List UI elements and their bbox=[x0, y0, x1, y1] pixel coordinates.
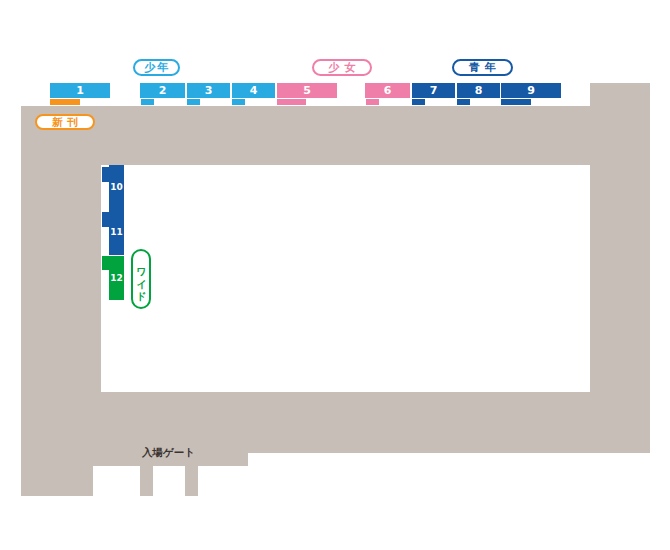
shelf-7: 7 bbox=[412, 83, 455, 98]
shelf-10-tab bbox=[102, 167, 109, 182]
shelf-5: 5 bbox=[277, 83, 337, 98]
shelf-3: 3 bbox=[187, 83, 230, 98]
shelf-2-tab bbox=[141, 99, 154, 105]
shelf-12-tab bbox=[102, 256, 109, 270]
shelf-9-tab bbox=[501, 99, 531, 105]
shelf-7-tab bbox=[412, 99, 425, 105]
shelf-6-tab bbox=[366, 99, 379, 105]
floor-left-walkway bbox=[21, 165, 101, 392]
gate-pillar-1 bbox=[140, 466, 153, 496]
shelf-2: 2 bbox=[140, 83, 185, 98]
floor-map-page: { "page": { "background": "#ffffff" }, "… bbox=[0, 0, 670, 550]
shelf-11-tab bbox=[102, 212, 109, 227]
shelf-1: 1 bbox=[50, 83, 110, 98]
shelf-9: 9 bbox=[501, 83, 561, 98]
entrance-gate-label: 入場ゲート bbox=[142, 447, 195, 458]
shelf-6: 6 bbox=[365, 83, 410, 98]
floor-top-walkway bbox=[21, 106, 590, 165]
legend-seinen: 青年 bbox=[452, 59, 513, 76]
shelf-4: 4 bbox=[232, 83, 275, 98]
shelf-12: 12 bbox=[109, 256, 124, 300]
shelf-8: 8 bbox=[457, 83, 500, 98]
shelf-10: 10 bbox=[109, 165, 124, 210]
legend-wide: ワイド bbox=[131, 249, 151, 309]
shelf-1-shinkan-tab bbox=[50, 99, 80, 105]
gate-wall-left bbox=[21, 466, 93, 496]
shelf-3-tab bbox=[187, 99, 200, 105]
shelf-11: 11 bbox=[109, 210, 124, 255]
shelf-8-tab bbox=[457, 99, 470, 105]
legend-shojo: 少女 bbox=[312, 59, 372, 76]
legend-shinkan: 新刊 bbox=[35, 114, 95, 130]
floor-bottom-walkway bbox=[21, 392, 650, 453]
shelf-5-tab bbox=[277, 99, 306, 105]
gate-pillar-2 bbox=[185, 466, 198, 496]
entrance-gate-porch bbox=[21, 453, 248, 466]
legend-shonen: 少年 bbox=[133, 59, 180, 76]
shelf-4-tab bbox=[232, 99, 245, 105]
